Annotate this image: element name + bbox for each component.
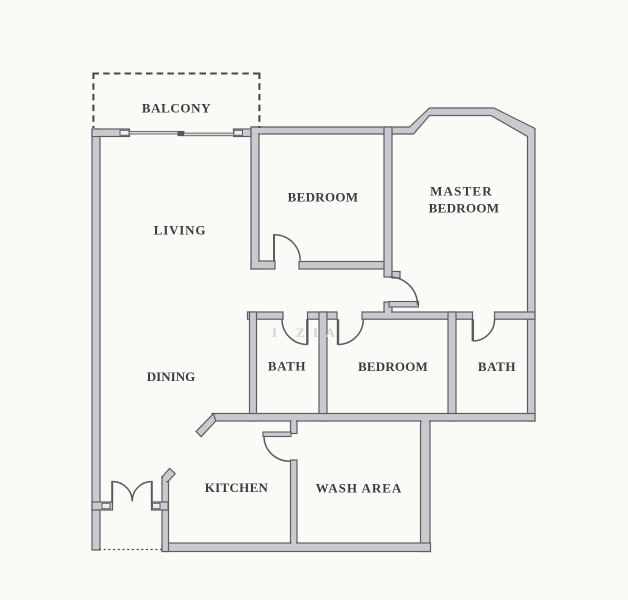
svg-text:Z: Z	[296, 325, 305, 340]
svg-text:MASTER: MASTER	[430, 184, 493, 199]
svg-text:KITCHEN: KITCHEN	[205, 480, 269, 495]
svg-text:A: A	[326, 325, 336, 340]
svg-text:BATH: BATH	[268, 359, 306, 374]
svg-text:WASH AREA: WASH AREA	[316, 481, 403, 496]
svg-text:BEDROOM: BEDROOM	[429, 201, 500, 216]
svg-text:BEDROOM: BEDROOM	[358, 359, 428, 374]
svg-text:BALCONY: BALCONY	[142, 101, 211, 116]
svg-text:DINING: DINING	[147, 369, 195, 384]
svg-text:LIVING: LIVING	[154, 223, 206, 238]
svg-text:BATH: BATH	[478, 359, 516, 374]
svg-text:I: I	[272, 325, 277, 340]
svg-text:BEDROOM: BEDROOM	[288, 190, 359, 205]
svg-text:I: I	[313, 325, 318, 340]
